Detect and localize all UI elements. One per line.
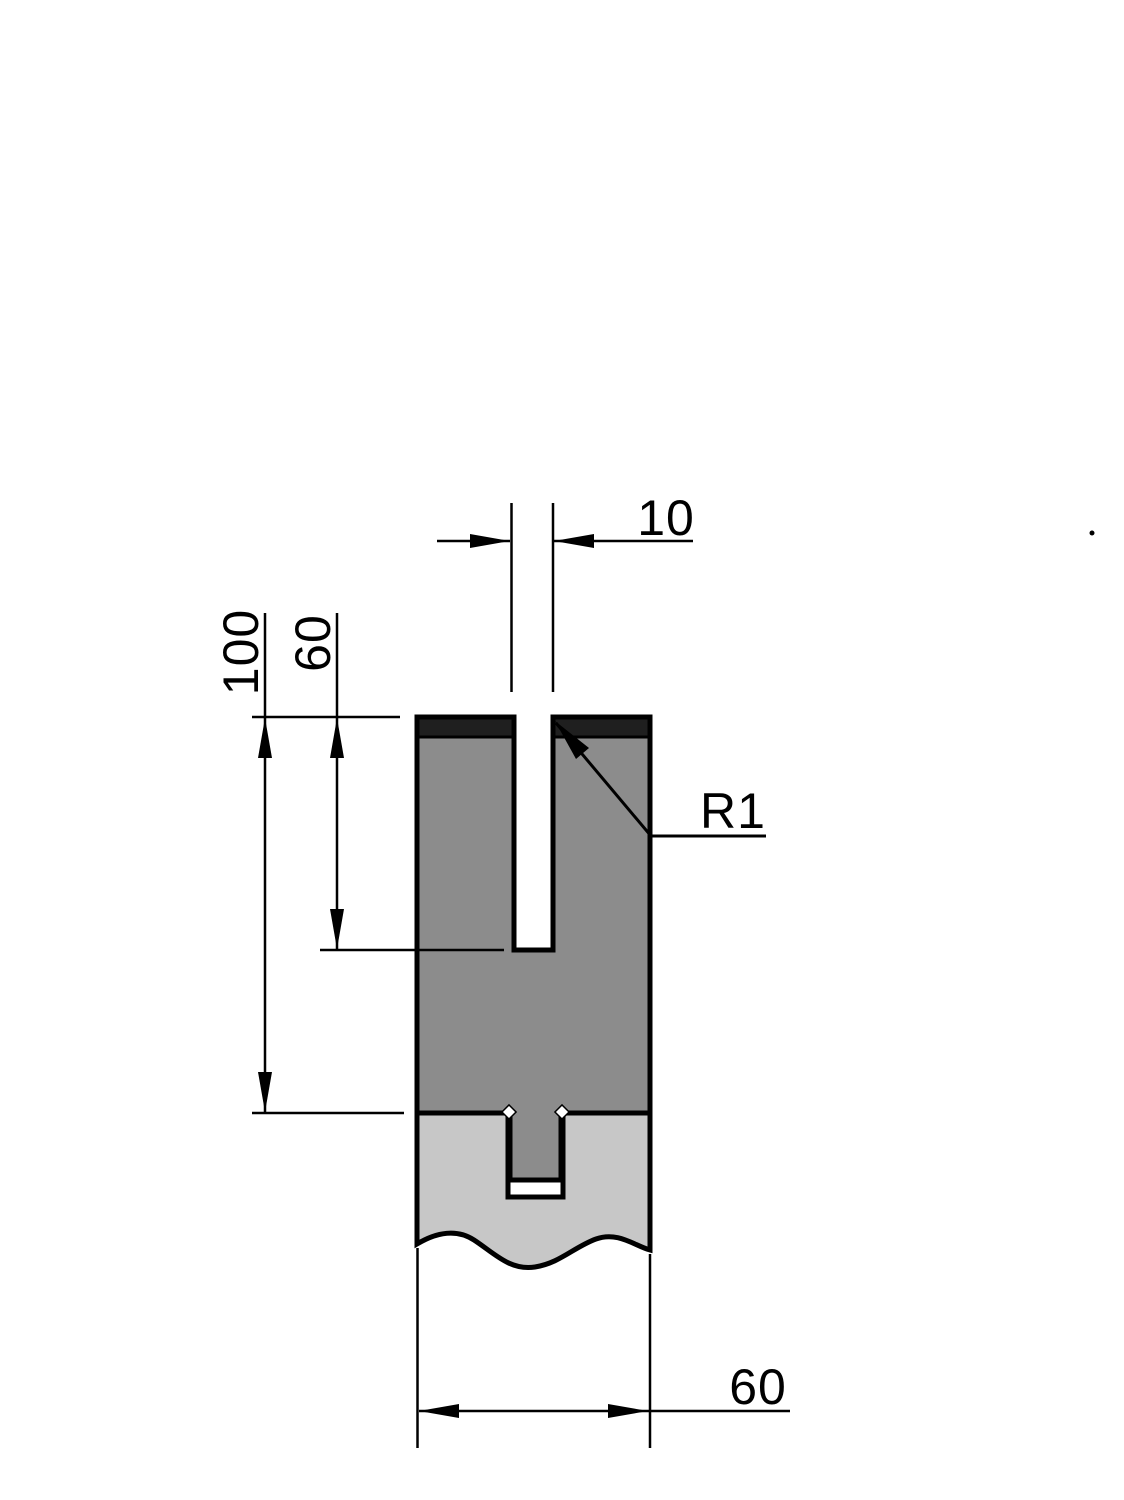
arrowhead-icon [330,718,344,758]
technical-drawing: 10 100 60 R1 [0,0,1124,1500]
dimension-overall-height: 100 [213,609,404,1113]
arrowhead-icon [470,534,510,548]
arrowhead-icon [554,534,594,548]
arrowhead-icon [608,1404,648,1418]
hardened-zone-left [417,717,514,737]
arrowhead-icon [258,1072,272,1112]
stray-dot [1090,531,1095,536]
dimension-value-body-width: 60 [729,1359,787,1415]
dimension-body-width: 60 [418,1248,791,1448]
arrowhead-icon [419,1404,459,1418]
dimension-value-slot-depth: 60 [285,614,341,672]
arrowhead-icon [258,718,272,758]
dimension-value-corner-radius: R1 [700,783,766,839]
dimension-value-slot-width: 10 [637,490,695,546]
dimension-slot-width: 10 [437,490,695,692]
dimension-value-overall-height: 100 [213,609,269,695]
arrowhead-icon [330,909,344,949]
drawing-canvas: 10 100 60 R1 [0,0,1124,1500]
